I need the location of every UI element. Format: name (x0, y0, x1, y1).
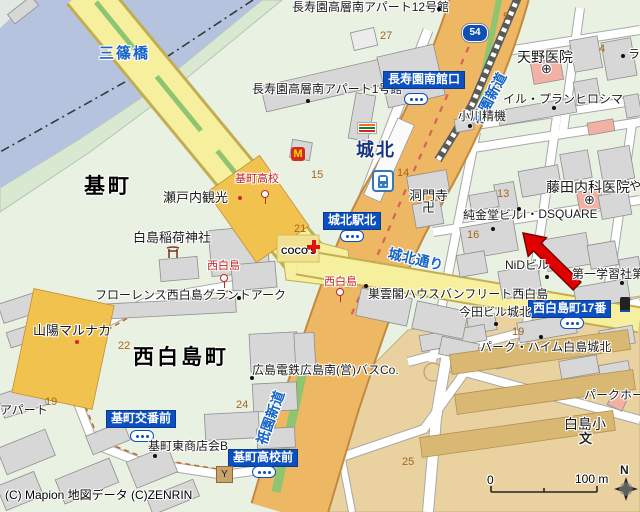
tram-stop-nishihakushima-2: 西白島 (324, 277, 357, 289)
basemap-shapes (0, 0, 640, 512)
map-canvas[interactable]: 長寿園高層南アパート12号館 三篠橋 54 祇園新道 長寿園高層南アパート1号館… (0, 0, 640, 512)
school-icon: 文 (579, 432, 592, 446)
poi-label-dsquare: I・DSQUARE (523, 208, 598, 221)
bus-stop-icon (404, 93, 428, 105)
poi-label-florence: フローレンス西白島グラントアーク (95, 289, 286, 302)
poi-label-partial-apart: アパート (0, 404, 48, 417)
poi-label-souunkaku: 巣雲閣ハウスバンフリート西白島 (368, 288, 548, 301)
poi-label-sanyo-marunaka: 山陽マルナカ (33, 324, 111, 338)
block-number: 22 (118, 341, 130, 353)
block-number: 5 (503, 12, 509, 24)
scale-distance-label: 100 m (575, 473, 608, 486)
seven-eleven-icon (357, 122, 377, 134)
poi-dot (250, 376, 254, 380)
poi-dot (468, 124, 472, 128)
poi-dot-red (75, 340, 79, 344)
poi-dot (620, 281, 624, 285)
station-label-johoku: 城北 (356, 141, 396, 160)
red-cross-icon (307, 240, 320, 253)
poi-label-hakushima-elementary: 白島小 (564, 417, 606, 432)
scale-zero-label: 0 (487, 474, 494, 487)
bus-stop-chojuen-minamikan[interactable]: 長寿園南館口 (383, 71, 465, 89)
poi-label-setouchi-kanko: 瀬戸内観光 (163, 191, 228, 205)
poi-label-partial-ra: ラ (628, 48, 640, 61)
poi-label-chojuen1: 長寿園高層南アパート1号館 (252, 83, 402, 96)
poi-dot-red (238, 196, 242, 200)
block-number: 15 (311, 170, 323, 182)
poi-dot (494, 322, 498, 326)
poi-dot (621, 54, 625, 58)
poi-label-daiichi-gakushusha: 第一学習社第 (572, 268, 640, 281)
train-station-icon[interactable] (372, 170, 394, 192)
poi-label-partial-parkho: パークホー (584, 389, 640, 402)
tram-stop-motomachi-koko: 基町高校 (235, 174, 279, 186)
bus-stop-icon (560, 317, 584, 329)
fuel-station-icon (620, 297, 630, 312)
poi-label-junkindo-building: 純金堂ビル (463, 209, 523, 222)
poi-label-nid-building: NiDビル (505, 259, 549, 272)
copyright-notice: (C) Mapion 地図データ (C)ZENRIN (5, 489, 192, 502)
compass-north-label: N (620, 464, 629, 477)
poi-label-hiroden-bus: 広島電鉄広島南(営)バスCo. (252, 364, 399, 377)
hospital-icon: ⊕ (584, 193, 595, 207)
bus-stop-motomachi-kobanmae[interactable]: 基町交番前 (106, 410, 176, 428)
y-building-icon: Y (216, 466, 233, 483)
district-label-nishihakushimacho: 西白島町 (133, 347, 229, 369)
poi-label-chojuen12: 長寿園高層南アパート12号館 (292, 1, 449, 14)
poi-dot (237, 296, 241, 300)
poi-label-ogawa: 小川精機 (458, 110, 506, 123)
block-number: 24 (236, 400, 248, 412)
temple-manji-icon: 卍 (422, 201, 435, 215)
block-number: 13 (497, 189, 509, 201)
poi-label-il-plan: イル・プランヒロシマ (503, 93, 623, 106)
tram-stop-icon (220, 274, 229, 288)
poi-label-partial-ya: や (629, 180, 640, 193)
district-label-motomachi: 基町 (84, 176, 132, 198)
block-number: 27 (380, 31, 392, 43)
poi-label-shotenkai: 基町東商店会B (148, 440, 228, 453)
poi-dot (539, 335, 543, 339)
block-number: 25 (402, 457, 414, 469)
poi-dot (491, 227, 495, 231)
torii-icon (167, 247, 179, 258)
poi-dot (517, 207, 521, 211)
bus-stop-johoku-ekikita[interactable]: 城北駅北 (323, 212, 381, 230)
poi-dot (552, 106, 556, 110)
poi-label-parkheim: パーク・ハイム白島城北 (480, 341, 611, 354)
bus-stop-icon (252, 466, 276, 478)
tram-stop-icon (336, 288, 345, 302)
poi-dot (545, 275, 549, 279)
block-number: 4 (599, 44, 605, 56)
poi-dot (153, 454, 157, 458)
block-number: 21 (294, 224, 306, 236)
mcdonalds-icon: M (291, 147, 305, 161)
hospital-icon: ⊕ (541, 62, 552, 76)
bus-stop-nishihakushimacho-17[interactable]: 西白島町17番 (528, 300, 611, 318)
block-number: 19 (512, 327, 524, 339)
road-label-misasa-bridge: 三篠橋 (99, 46, 150, 62)
block-number: 14 (397, 168, 409, 180)
tram-stop-icon (261, 190, 270, 204)
poi-dot (437, 7, 441, 11)
poi-label-imada-building: 今田ビル城北 (459, 306, 531, 319)
block-number: 16 (467, 230, 479, 242)
bus-stop-icon (340, 230, 364, 242)
poi-label-inari-shrine: 白島稲荷神社 (133, 231, 211, 245)
tram-stop-nishihakushima: 西白島 (207, 261, 240, 273)
bus-stop-motomachi-kokomae[interactable]: 基町高校前 (228, 449, 298, 467)
route-54-shield-icon: 54 (462, 24, 488, 42)
poi-dot (306, 99, 310, 103)
poi-dot (364, 284, 368, 288)
